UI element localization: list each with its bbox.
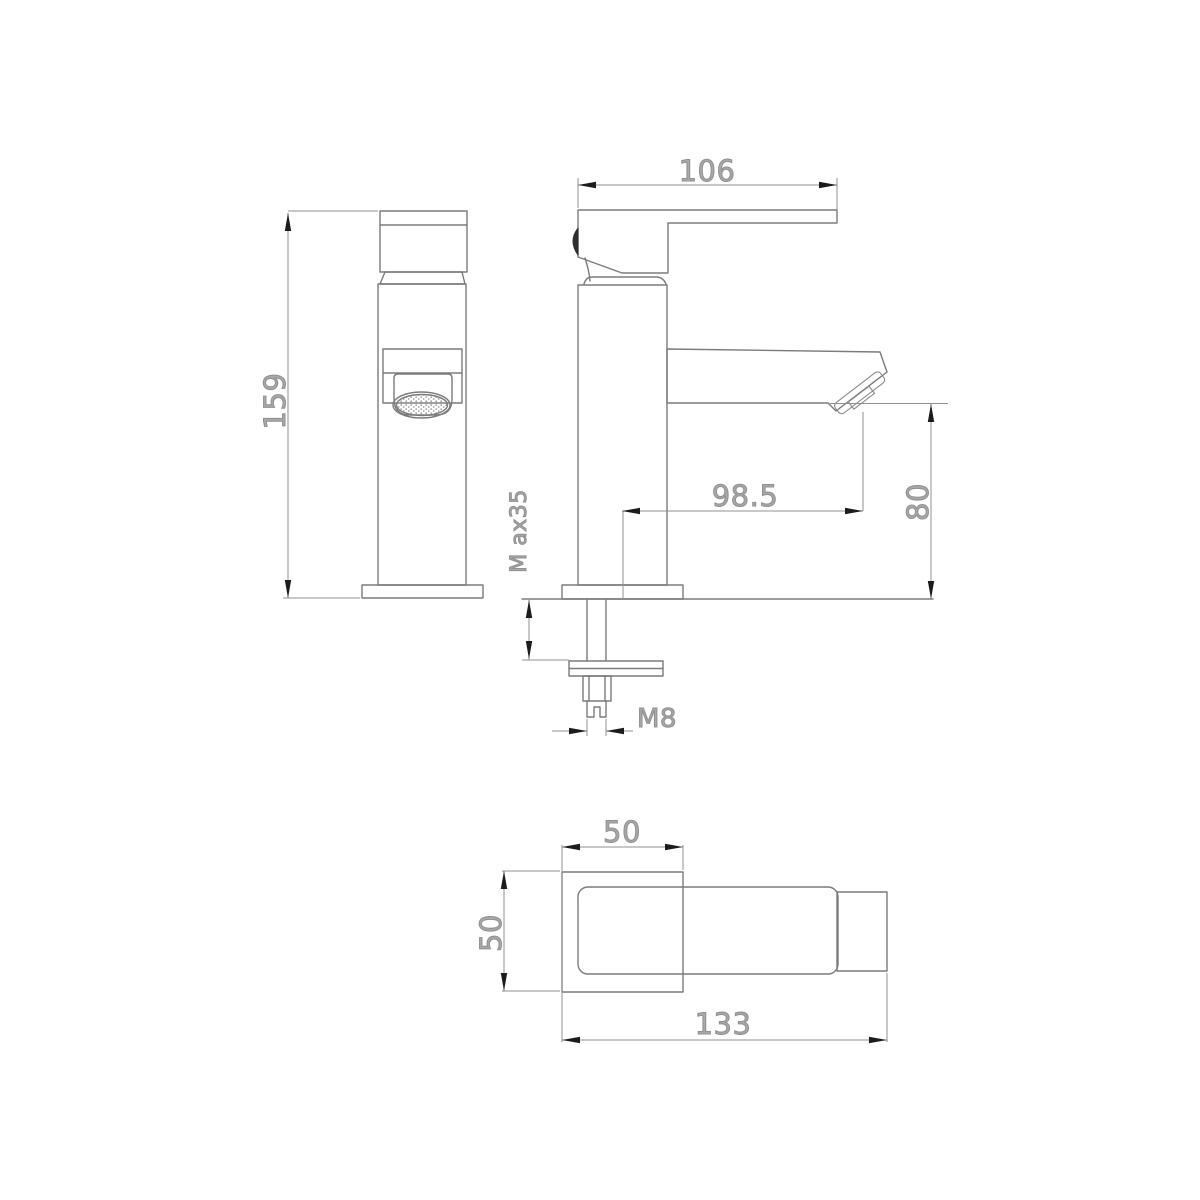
arrowhead-down <box>285 580 291 598</box>
arrowhead-right <box>569 728 587 734</box>
handle-length-dimension: 106 <box>578 154 837 210</box>
front-view: 159 <box>258 211 483 598</box>
outlet-height-dimension: 80 <box>830 404 948 600</box>
bottom-handle-outline <box>578 887 838 974</box>
dim-label-max-deck-thickness: M ax35 <box>507 489 532 572</box>
mounting-nut <box>583 676 611 701</box>
side-collar <box>584 277 666 284</box>
dim-label-base-width: 50 <box>603 815 641 849</box>
dim-label-outlet-height: 80 <box>901 483 935 521</box>
arrowhead-right <box>869 1037 887 1043</box>
dim-label-base-depth: 50 <box>474 914 508 952</box>
front-base-plate <box>362 585 483 598</box>
arrowhead-down <box>928 581 934 599</box>
arrowhead-down <box>526 641 532 659</box>
dim-label-spout-reach: 98.5 <box>712 479 779 513</box>
front-body <box>378 284 466 585</box>
front-aerator-mesh <box>397 395 448 416</box>
faucet-technical-drawing: 159 <box>0 0 1200 1200</box>
side-handle-tip <box>573 228 578 255</box>
base-width-dimension: 50 <box>562 815 683 1042</box>
side-handle-lever <box>578 210 837 273</box>
dim-label-overall-height: 159 <box>258 373 292 430</box>
max-deck-thickness-dimension: M ax35 <box>507 489 569 660</box>
arrowhead-right <box>845 508 863 514</box>
front-height-dimension: 159 <box>258 211 378 598</box>
dim-label-handle-length: 106 <box>679 154 736 188</box>
arrowhead-down <box>501 973 507 991</box>
arrowhead-left <box>606 728 624 734</box>
arrowhead-left <box>562 844 580 850</box>
rod-slotted-end <box>587 701 606 717</box>
side-view: 106 98.5 80 M ax35 <box>507 154 948 736</box>
arrowhead-left <box>562 1037 580 1043</box>
front-neck <box>380 272 465 284</box>
dim-label-thread-size: M8 <box>637 704 677 734</box>
bottom-view: 50 50 133 <box>474 815 887 1043</box>
arrowhead-up <box>526 600 532 618</box>
technical-drawing-canvas: 159 <box>0 0 1200 1200</box>
spout-reach-dimension: 98.5 <box>622 412 863 598</box>
arrowhead-right <box>819 182 837 188</box>
dim-label-overall-length: 133 <box>695 1007 752 1041</box>
arrowhead-left <box>578 182 596 188</box>
thread-size-dimension: M8 <box>552 704 677 736</box>
arrowhead-up <box>928 404 934 422</box>
arrowhead-up <box>501 871 507 889</box>
side-spout <box>667 349 887 411</box>
overall-length-dimension: 133 <box>562 973 887 1043</box>
bottom-handle-end-cap <box>837 892 887 971</box>
arrowhead-up <box>285 213 291 231</box>
base-depth-dimension: 50 <box>474 871 560 991</box>
arrowhead-right <box>665 844 683 850</box>
arrowhead-left <box>622 508 640 514</box>
front-handle-block <box>380 211 467 272</box>
